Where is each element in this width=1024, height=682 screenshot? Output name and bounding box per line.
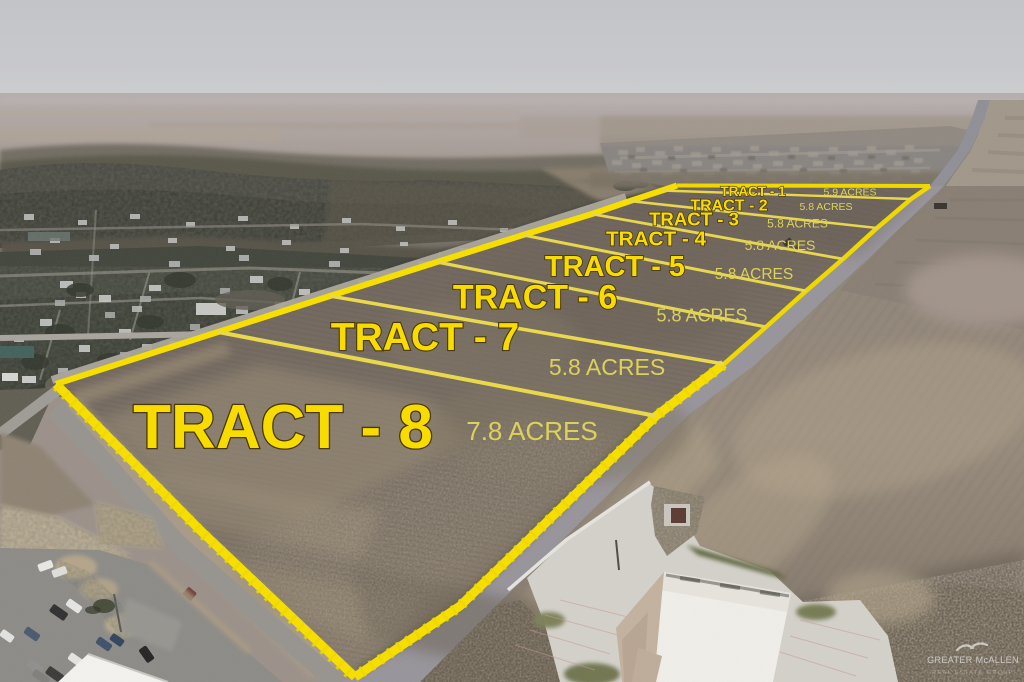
svg-text:TRACT - 6: TRACT - 6 bbox=[453, 279, 617, 317]
svg-text:7.8 ACRES: 7.8 ACRES bbox=[466, 416, 598, 446]
svg-text:TRACT - 8: TRACT - 8 bbox=[133, 393, 433, 462]
svg-text:REAL ESTATE GROUP: REAL ESTATE GROUP bbox=[932, 670, 1014, 676]
svg-text:5.8 ACRES: 5.8 ACRES bbox=[745, 237, 816, 253]
svg-text:5.8 ACRES: 5.8 ACRES bbox=[767, 217, 828, 231]
svg-text:5.8 ACRES: 5.8 ACRES bbox=[656, 306, 747, 326]
svg-text:TRACT - 3: TRACT - 3 bbox=[649, 209, 739, 230]
svg-text:5.8 ACRES: 5.8 ACRES bbox=[715, 266, 793, 283]
svg-text:5.9 ACRES: 5.9 ACRES bbox=[823, 187, 876, 199]
svg-text:TRACT - 7: TRACT - 7 bbox=[331, 316, 520, 359]
svg-text:GREATER McALLEN: GREATER McALLEN bbox=[927, 655, 1019, 665]
svg-text:5.8 ACRES: 5.8 ACRES bbox=[799, 201, 852, 213]
svg-text:5.8 ACRES: 5.8 ACRES bbox=[549, 354, 665, 380]
svg-text:TRACT - 4: TRACT - 4 bbox=[606, 228, 706, 251]
